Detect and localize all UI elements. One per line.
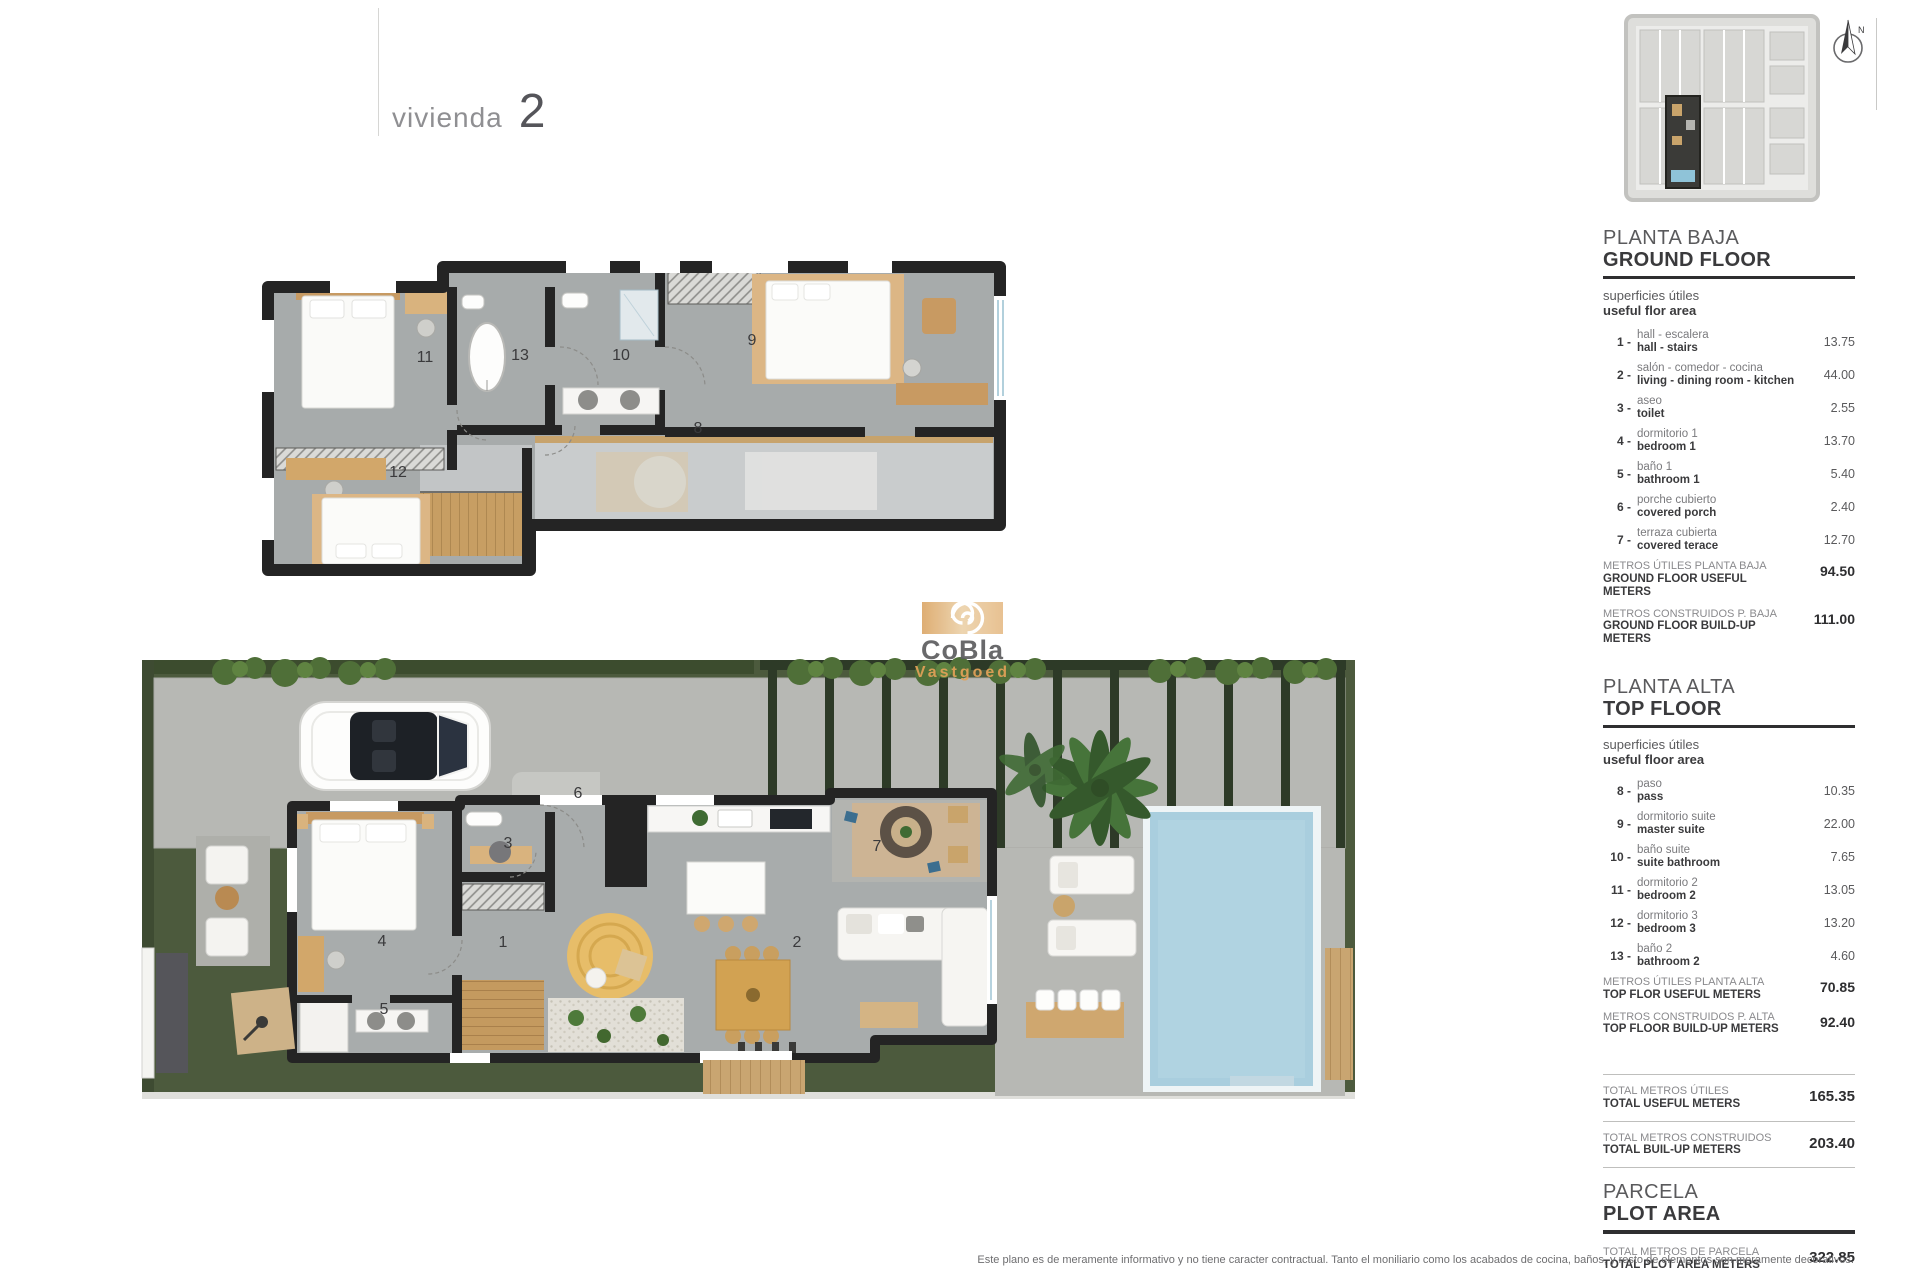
row-number: 6 bbox=[1603, 494, 1637, 519]
room-label-11: 11 bbox=[417, 349, 434, 366]
plot-title-en: PLOT AREA bbox=[1603, 1203, 1855, 1225]
ground-title-es: PLANTA BAJA bbox=[1603, 228, 1855, 249]
row-value: 2.40 bbox=[1809, 494, 1855, 519]
title-word: vivienda bbox=[392, 102, 503, 134]
row-label-es: dormitorio suite bbox=[1637, 811, 1809, 824]
row-value: 13.75 bbox=[1809, 329, 1855, 354]
legend-row: 7 terraza cubiertacovered terace 12.70 bbox=[1603, 527, 1855, 552]
row-label-en: covered terace bbox=[1637, 540, 1809, 553]
total-label-es: METROS CONSTRUIDOS P. BAJA bbox=[1603, 608, 1795, 621]
row-label-en: master suite bbox=[1637, 824, 1809, 837]
row-label-es: terraza cubierta bbox=[1637, 527, 1809, 540]
title-divider bbox=[378, 8, 379, 136]
total-value: 94.50 bbox=[1795, 560, 1855, 599]
row-label-es: porche cubierto bbox=[1637, 494, 1809, 507]
total-label-es: TOTAL METROS CONSTRUIDOS bbox=[1603, 1132, 1791, 1145]
legend-row: 13 baño 2bathroom 2 4.60 bbox=[1603, 943, 1855, 968]
stairs-ground bbox=[462, 980, 544, 1050]
row-value: 12.70 bbox=[1809, 527, 1855, 552]
section-rule bbox=[1603, 276, 1855, 279]
row-label-en: hall - stairs bbox=[1637, 342, 1809, 355]
row-label-es: salón - comedor - cocina bbox=[1637, 362, 1809, 375]
row-number: 3 bbox=[1603, 395, 1637, 420]
row-number: 9 bbox=[1603, 811, 1637, 836]
ground-title-en: GROUND FLOOR bbox=[1603, 249, 1855, 271]
total-label-en: TOP FLOOR BUILD-UP METERS bbox=[1603, 1023, 1795, 1036]
row-label-en: toilet bbox=[1637, 408, 1809, 421]
row-label-en: pass bbox=[1637, 791, 1809, 804]
room-label-6: 6 bbox=[574, 785, 583, 802]
total-label-es: METROS ÚTILES PLANTA ALTA bbox=[1603, 976, 1795, 989]
row-label-es: paso bbox=[1637, 778, 1809, 791]
row-number: 10 bbox=[1603, 844, 1637, 869]
row-label-en: bathroom 1 bbox=[1637, 474, 1809, 487]
section-rule bbox=[1603, 1230, 1855, 1234]
ground-floor-plan: 1 2 3 4 5 6 7 bbox=[135, 652, 1365, 1107]
page-title: vivienda 2 bbox=[392, 84, 545, 139]
legend-section-top: PLANTA ALTA TOP FLOOR superficies útiles… bbox=[1603, 677, 1855, 1036]
watermark-name: CoBla bbox=[905, 637, 1020, 664]
legend-row: 1 hall - escalerahall - stairs 13.75 bbox=[1603, 329, 1855, 354]
divider bbox=[1603, 1074, 1855, 1075]
legend-row: 5 baño 1bathroom 1 5.40 bbox=[1603, 461, 1855, 486]
top-useful-total: METROS ÚTILES PLANTA ALTATOP FLOR USEFUL… bbox=[1603, 976, 1855, 1002]
row-label-en: living - dining room - kitchen bbox=[1637, 375, 1809, 388]
legend-row: 11 dormitorio 2bedroom 2 13.05 bbox=[1603, 877, 1855, 902]
room-label-4: 4 bbox=[378, 933, 387, 950]
compass-icon: N bbox=[1834, 20, 1865, 62]
room-label-8: 8 bbox=[694, 420, 703, 437]
total-value: 92.40 bbox=[1795, 1011, 1855, 1037]
stairs-top-floor bbox=[420, 492, 532, 556]
room-label-9: 9 bbox=[748, 332, 757, 349]
row-number: 7 bbox=[1603, 527, 1637, 552]
total-built: TOTAL METROS CONSTRUIDOSTOTAL BUIL-UP ME… bbox=[1603, 1129, 1855, 1161]
site-plan-thumbnail: N bbox=[1618, 8, 1878, 208]
row-number: 5 bbox=[1603, 461, 1637, 486]
ground-subtitle-en: useful flor area bbox=[1603, 303, 1855, 318]
room-label-12: 12 bbox=[389, 464, 407, 481]
total-label-es: TOTAL METROS ÚTILES bbox=[1603, 1085, 1791, 1098]
row-value: 2.55 bbox=[1809, 395, 1855, 420]
row-value: 13.70 bbox=[1809, 428, 1855, 453]
total-value: 111.00 bbox=[1795, 608, 1855, 647]
room-label-3: 3 bbox=[504, 835, 513, 852]
total-value: 70.85 bbox=[1795, 976, 1855, 1002]
room-label-5: 5 bbox=[380, 1001, 389, 1018]
ground-subtitle-es: superficies útiles bbox=[1603, 288, 1855, 303]
total-label-es: METROS CONSTRUIDOS P. ALTA bbox=[1603, 1011, 1795, 1024]
wardrobe-master-suite bbox=[668, 272, 760, 304]
row-value: 7.65 bbox=[1809, 844, 1855, 869]
total-label-en: TOP FLOR USEFUL METERS bbox=[1603, 989, 1795, 1002]
legend-grand-totals: TOTAL METROS ÚTILESTOTAL USEFUL METERS 1… bbox=[1603, 1074, 1855, 1168]
void-rim bbox=[535, 436, 993, 443]
legend-row: 10 baño suitesuite bathroom 7.65 bbox=[1603, 844, 1855, 869]
watermark-logo-icon bbox=[905, 596, 1020, 638]
row-label-es: dormitorio 2 bbox=[1637, 877, 1809, 890]
watermark: CoBla Vastgoed bbox=[905, 596, 1020, 681]
room-label-13: 13 bbox=[511, 347, 529, 364]
row-number: 4 bbox=[1603, 428, 1637, 453]
total-value: 165.35 bbox=[1791, 1085, 1855, 1111]
room-label-2: 2 bbox=[793, 934, 802, 951]
row-label-es: dormitorio 1 bbox=[1637, 428, 1809, 441]
row-number: 1 bbox=[1603, 329, 1637, 354]
total-label-es: METROS ÚTILES PLANTA BAJA bbox=[1603, 560, 1795, 573]
divider bbox=[1603, 1167, 1855, 1168]
car bbox=[300, 702, 490, 790]
disclaimer-text: Este plano es de meramente informativo y… bbox=[754, 1254, 1854, 1266]
row-label-en: suite bathroom bbox=[1637, 857, 1809, 870]
header-divider bbox=[1876, 18, 1877, 110]
total-label-en: GROUND FLOOR BUILD-UP METERS bbox=[1603, 620, 1795, 646]
hall-wardrobe bbox=[462, 884, 544, 910]
legend-row: 9 dormitorio suitemaster suite 22.00 bbox=[1603, 811, 1855, 836]
row-value: 5.40 bbox=[1809, 461, 1855, 486]
top-built-total: METROS CONSTRUIDOS P. ALTATOP FLOOR BUIL… bbox=[1603, 1011, 1855, 1037]
living-rug bbox=[567, 913, 653, 999]
legend-row: 4 dormitorio 1bedroom 1 13.70 bbox=[1603, 428, 1855, 453]
row-number: 11 bbox=[1603, 877, 1637, 902]
plan-sheet: vivienda 2 bbox=[0, 0, 1920, 1280]
legend-sidebar: PLANTA BAJA GROUND FLOOR superficies úti… bbox=[1603, 228, 1855, 1280]
top-floor-plan: 11 13 10 9 8 12 bbox=[250, 250, 1020, 585]
legend-row: 12 dormitorio 3bedroom 3 13.20 bbox=[1603, 910, 1855, 935]
watermark-subname: Vastgoed bbox=[905, 664, 1020, 681]
row-label-es: dormitorio 3 bbox=[1637, 910, 1809, 923]
row-value: 22.00 bbox=[1809, 811, 1855, 836]
legend-row: 3 aseotoilet 2.55 bbox=[1603, 395, 1855, 420]
row-value: 13.05 bbox=[1809, 877, 1855, 902]
entry-walkway bbox=[703, 1060, 805, 1094]
row-label-es: hall - escalera bbox=[1637, 329, 1809, 342]
total-value: 203.40 bbox=[1791, 1132, 1855, 1158]
top-subtitle-en: useful floor area bbox=[1603, 752, 1855, 767]
row-label-en: bedroom 1 bbox=[1637, 441, 1809, 454]
row-label-en: covered porch bbox=[1637, 507, 1809, 520]
total-label-en: TOTAL BUIL-UP METERS bbox=[1603, 1144, 1791, 1157]
terrace-furniture bbox=[844, 803, 980, 877]
dining-set bbox=[716, 946, 790, 1044]
row-number: 13 bbox=[1603, 943, 1637, 968]
top-subtitle-es: superficies útiles bbox=[1603, 737, 1855, 752]
top-title-en: TOP FLOOR bbox=[1603, 698, 1855, 720]
row-value: 44.00 bbox=[1809, 362, 1855, 387]
row-number: 8 bbox=[1603, 778, 1637, 803]
total-label-en: GROUND FLOOR USEFUL METERS bbox=[1603, 573, 1795, 599]
legend-row: 2 salón - comedor - cocinaliving - dinin… bbox=[1603, 362, 1855, 387]
legend-section-ground: PLANTA BAJA GROUND FLOOR superficies úti… bbox=[1603, 228, 1855, 646]
ground-built-total: METROS CONSTRUIDOS P. BAJAGROUND FLOOR B… bbox=[1603, 608, 1855, 647]
room-label-1: 1 bbox=[499, 934, 508, 951]
row-label-es: aseo bbox=[1637, 395, 1809, 408]
total-label-en: TOTAL USEFUL METERS bbox=[1603, 1098, 1791, 1111]
ground-useful-total: METROS ÚTILES PLANTA BAJAGROUND FLOOR US… bbox=[1603, 560, 1855, 599]
row-label-es: baño 1 bbox=[1637, 461, 1809, 474]
row-label-en: bedroom 2 bbox=[1637, 890, 1809, 903]
row-label-es: baño suite bbox=[1637, 844, 1809, 857]
row-value: 4.60 bbox=[1809, 943, 1855, 968]
title-number: 2 bbox=[519, 84, 546, 139]
row-value: 10.35 bbox=[1809, 778, 1855, 803]
divider bbox=[1603, 1121, 1855, 1122]
row-number: 2 bbox=[1603, 362, 1637, 387]
site-highlighted-unit bbox=[1666, 96, 1700, 188]
total-useful: TOTAL METROS ÚTILESTOTAL USEFUL METERS 1… bbox=[1603, 1082, 1855, 1114]
legend-row: 8 pasopass 10.35 bbox=[1603, 778, 1855, 803]
compass-north-label: N bbox=[1858, 25, 1865, 35]
top-title-es: PLANTA ALTA bbox=[1603, 677, 1855, 698]
row-label-en: bathroom 2 bbox=[1637, 956, 1809, 969]
room-label-7: 7 bbox=[873, 838, 882, 855]
side-gate bbox=[142, 948, 188, 1078]
legend-row: 6 porche cubiertocovered porch 2.40 bbox=[1603, 494, 1855, 519]
row-label-es: baño 2 bbox=[1637, 943, 1809, 956]
row-label-en: bedroom 3 bbox=[1637, 923, 1809, 936]
row-number: 12 bbox=[1603, 910, 1637, 935]
row-value: 13.20 bbox=[1809, 910, 1855, 935]
room-label-10: 10 bbox=[612, 347, 630, 364]
plot-title-es: PARCELA bbox=[1603, 1182, 1855, 1203]
outdoor-shower bbox=[231, 987, 295, 1055]
section-rule bbox=[1603, 725, 1855, 728]
